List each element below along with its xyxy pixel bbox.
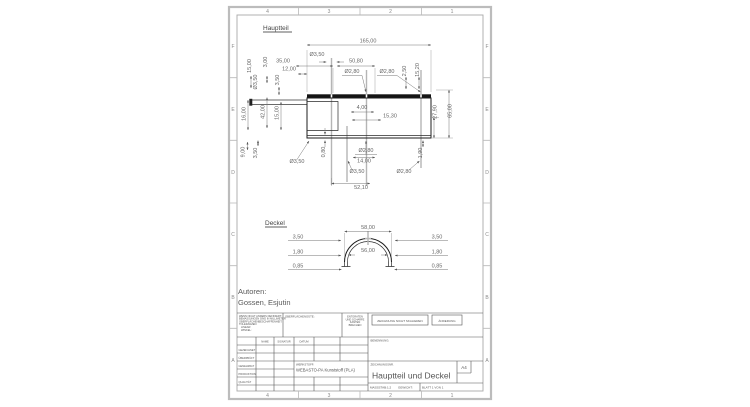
zone-label: C [231,232,235,238]
dim-label: 9,00 [241,147,247,158]
dim-label: 15,00 [247,59,253,73]
do-not-scale-note: ZEICHNUNG NICHT SKALIEREN [377,319,422,323]
title-block-right: BENENNUNG: ZEICHNUNGSNR. Hauptteil und D… [370,339,467,390]
dim-label: 165,00 [360,39,377,45]
dim-label: 3,50 [275,75,281,86]
dim-label: Ø2,80 [359,148,374,154]
drawing-title: Hauptteil und Deckel [372,371,451,381]
table-row-label: GENEHMIGT [239,364,255,368]
deckel-centerline [365,231,371,245]
dim-label: 35,00 [276,59,290,65]
zone-label: F [231,44,234,50]
dim-label: 27,90 [433,105,439,119]
dim-label: 1,80 [293,250,304,256]
title-block-notes: WENN NICHT ANDERS DEFINIERT: BEMASSUNGEN… [239,314,456,332]
view-title-hauptteil: Hauptteil [263,25,289,32]
table-row-label: GEZEICHNET [239,348,256,352]
table-row-label: ÜBERPRÜFT [239,356,255,360]
dim-label: 15,30 [383,114,397,120]
dim-label: 3,50 [253,148,259,159]
dim-label: 65,00 [448,104,454,118]
zone-label: 2 [389,393,392,399]
authors-label: Autoren: [238,287,266,296]
dim-label: 15,20 [415,63,421,77]
zone-label: 2 [389,9,392,15]
dim-label: 42,00 [261,105,267,119]
deckel-view: Deckel 58,00 56,00 3,5 [265,220,448,270]
zone-label: C [485,232,489,238]
zone-label: B [485,295,489,301]
dim-label: 12,00 [282,67,296,73]
hauptteil-view: Hauptteil [241,25,454,191]
dim-label: 3,50 [432,235,443,241]
zone-label: 1 [451,393,454,399]
zone-label: D [485,170,489,176]
sheet-size: A4 [461,365,467,370]
material-value: WEBASTO-PA Kunststoff (PLA) [296,368,355,373]
zone-label: F [485,44,488,50]
table-header: NAME [261,340,269,344]
dim-label: 52,10 [354,185,368,191]
dim-label: 16,00 [242,107,248,121]
dim-label: Ø2,80 [345,69,360,75]
zone-label: 4 [266,9,269,15]
drawing-sheet: 4 3 2 1 4 3 2 1 F E D C B A F E D C B A … [0,0,750,407]
zone-label: E [485,107,489,113]
table-header: SIGNATUR [277,340,290,344]
dim-label: 2,50 [402,66,408,77]
drawing-page: 4 3 2 1 4 3 2 1 F E D C B A F E D C B A … [0,0,750,407]
zone-label: 4 [266,393,269,399]
zone-label: 1 [451,9,454,15]
dim-label: 1,80 [432,250,443,256]
zone-label: E [231,107,235,113]
zone-labels: 4 3 2 1 4 3 2 1 F E D C B A F E D C B A [231,9,489,399]
zone-label: A [231,358,235,364]
dim-label: 3,00 [263,57,269,68]
dim-label: Ø2,80 [380,69,395,75]
revision-label: ÄNDERUNG [438,319,456,323]
sheet-count-label: BLATT 1 VON 1 [422,386,444,390]
dim-label: 0,80 [321,147,327,158]
surface-finish-label: OBERFLÄCHENGÜTE: [285,315,315,319]
deburr-note: BRECHEN [349,323,362,327]
table-row-label: QUALITÄT [239,380,252,384]
dim-label: 58,00 [361,225,375,231]
dim-label: 1,90 [418,148,424,159]
title-label: BENENNUNG: [371,339,390,343]
dim-label: 0,85 [432,264,443,270]
dim-label: 14,00 [357,159,371,165]
weight-label: GEWICHT: [398,386,413,390]
note-line: WINKEL: [241,328,252,332]
zone-label: D [231,170,235,176]
zone-label: A [485,358,489,364]
dim-label: 50,80 [349,59,363,65]
material-label: WERKSTOFF: [296,363,315,367]
authors-note: Autoren: Gossen, Esjutin [238,287,291,307]
authors-names: Gossen, Esjutin [238,298,291,307]
dim-label: Ø3,50 [253,75,259,90]
zone-label: 3 [328,393,331,399]
dim-label: 4,00 [357,105,368,111]
dim-label: 0,85 [293,264,304,270]
table-header: DATUM [299,340,308,344]
dim-label: 15,00 [275,106,281,120]
title-block: WENN NICHT ANDERS DEFINIERT: BEMASSUNGEN… [237,313,483,391]
dim-label: Ø3,50 [310,52,325,58]
zone-label: 3 [328,9,331,15]
dim-label: Ø2,80 [397,169,412,175]
dim-label: Ø3,50 [290,159,305,165]
dim-label: 3,50 [293,235,304,241]
dim-label: 56,00 [361,248,375,254]
zone-label: B [231,295,235,301]
drawing-number-label: ZEICHNUNGSNR. [371,363,395,367]
view-title-deckel: Deckel [265,220,285,227]
scale-label: MASSSTAB:1:2 [370,386,391,390]
table-row-label: PRODUKTION [239,372,256,376]
dim-label: Ø3,50 [350,169,365,175]
